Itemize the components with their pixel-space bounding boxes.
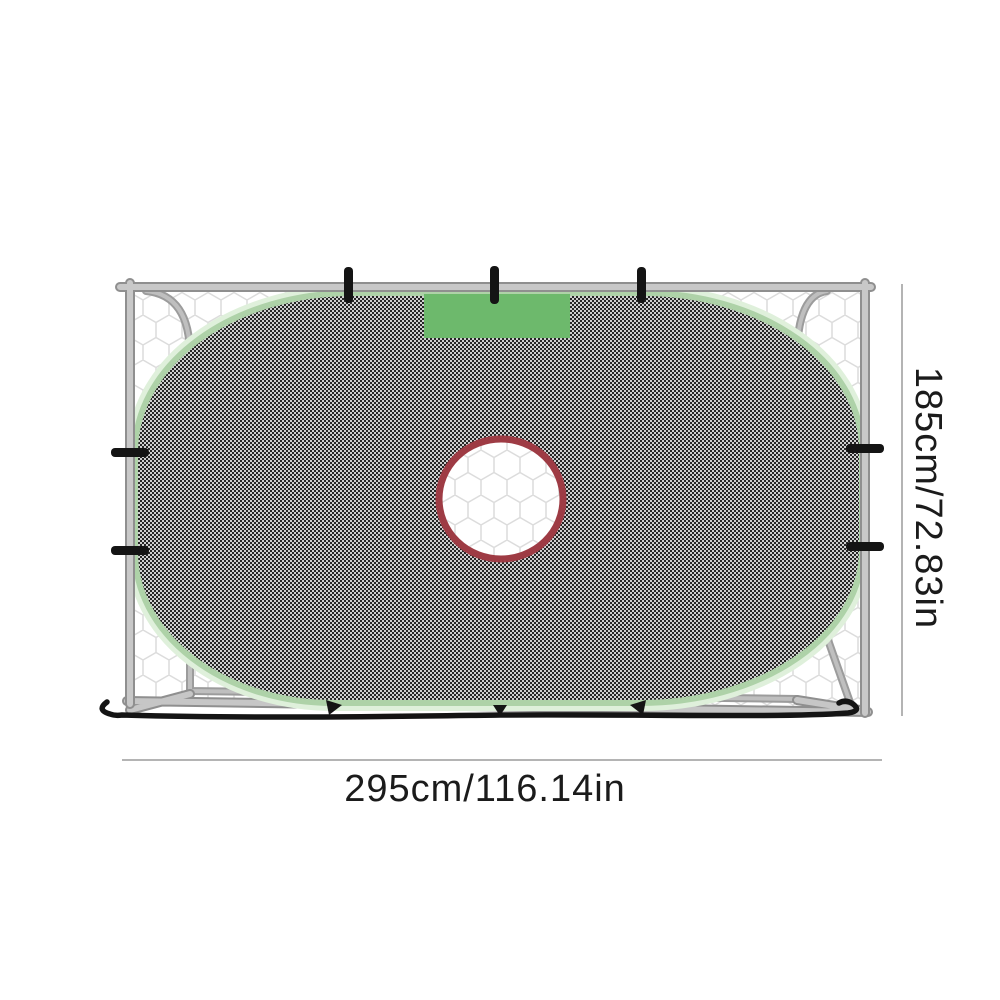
height-dimension-label: 185cm/72.83in: [907, 367, 949, 629]
crossbar-strap-right: [637, 267, 646, 303]
right-post-strap-lower: [846, 542, 884, 551]
product-image-goal-target-net: 185cm/72.83in 295cm/116.14in: [0, 0, 1000, 1000]
left-post-strap-lower: [111, 546, 149, 555]
width-dimension-label: 295cm/116.14in: [344, 768, 626, 810]
product-illustration: 185cm/72.83in 295cm/116.14in: [0, 0, 1000, 1000]
right-post-strap-upper: [846, 444, 884, 453]
crossbar-strap-center: [490, 266, 499, 304]
left-post-strap-upper: [111, 448, 149, 457]
target-mesh-sheet: [135, 293, 862, 703]
crossbar-strap-left: [344, 267, 353, 303]
